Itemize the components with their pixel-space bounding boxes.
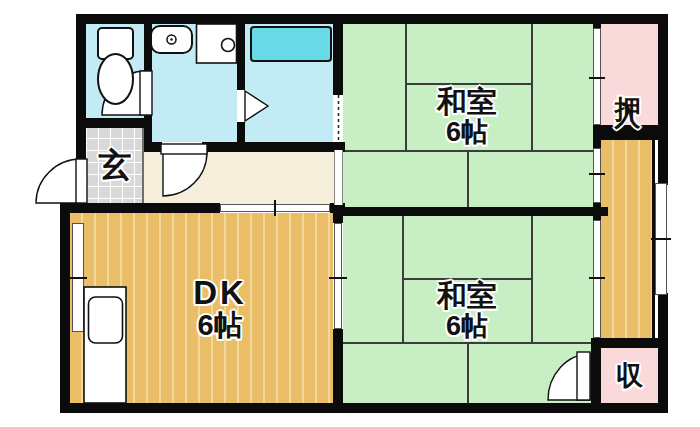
- washer-pan-icon: [197, 24, 237, 63]
- room-name: 和室: [377, 86, 557, 118]
- label-storage: 収: [601, 362, 658, 390]
- label-oshiire: 押入: [613, 40, 643, 120]
- kitchen-sink-icon: [84, 287, 126, 403]
- label-genkan: 玄: [86, 148, 144, 182]
- entrance-door-icon: [36, 159, 87, 203]
- bathtub-icon: [251, 27, 331, 61]
- label-washitsu-bottom: 和室 6帖: [377, 280, 557, 340]
- label-washitsu-top: 和室 6帖: [377, 86, 557, 146]
- toilet-icon: [98, 28, 133, 104]
- washroom-door-icon: [161, 144, 207, 196]
- room-name: 和室: [377, 280, 557, 312]
- room-name: DK: [130, 276, 310, 310]
- room-size: 6帖: [377, 118, 557, 146]
- fixtures-layer: [0, 0, 700, 427]
- storage-door-icon: [548, 352, 590, 400]
- room-size: 6帖: [377, 312, 557, 340]
- floor-plan: 和室 6帖 和室 6帖 DK 6帖 玄 押入 収: [0, 0, 700, 427]
- washbasin-icon: [151, 26, 192, 53]
- label-dk: DK 6帖: [130, 276, 310, 340]
- room-size: 6帖: [130, 310, 310, 340]
- bath-door-icon: [245, 91, 268, 121]
